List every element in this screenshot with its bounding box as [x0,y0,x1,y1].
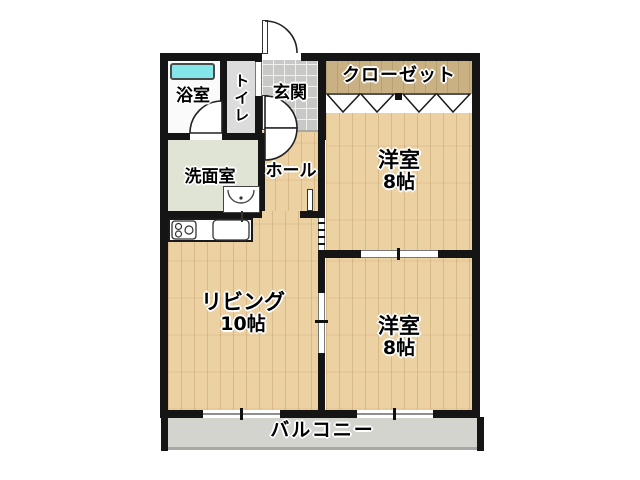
balcony-edge [168,447,477,450]
window-tick [393,408,396,420]
living-door-leaf-icon [307,189,313,211]
closet-label: クローゼット [328,66,470,87]
wall [280,410,357,418]
living-name: リビング [201,290,285,314]
balcony-post [161,417,168,451]
bedroom-bottom-label: 洋室 8帖 [326,314,472,360]
balcony-label: バルコニー [168,420,477,442]
wall [160,133,190,140]
bedroom-top-name: 洋室 [378,148,420,172]
bedroom-top-size: 8帖 [326,172,472,194]
wall [301,53,480,61]
kitchen-counter [168,218,253,242]
hall-label: ホール [262,162,320,182]
wall [318,53,326,140]
sliding-door-tick [397,248,400,260]
entrance-label: 玄関 [262,84,318,104]
washroom-label: 洗面室 [164,168,256,188]
bathroom-label: 浴室 [168,87,218,107]
wall [220,60,227,133]
toilet-doorway [255,62,262,96]
washbasin-icon [223,186,260,213]
wall [160,53,168,417]
wall [160,53,262,61]
balcony-post [477,417,484,451]
bathroom-doorway [190,133,222,140]
bedroom-top-label: 洋室 8帖 [326,148,472,194]
entrance-step-line [267,130,318,132]
wall [433,410,480,418]
closet-divider [395,93,402,100]
door-tick [318,229,325,231]
floorplan-canvas: 浴室 トイレ 玄関 クローゼット 洋室 8帖 洗面室 ホール リビング 10帖 … [0,0,640,480]
entrance-door-arc-icon [265,21,297,53]
wall [220,133,267,140]
door-tick [318,222,325,224]
bedroom-bottom-name: 洋室 [378,314,420,338]
window-tick [240,408,243,420]
toilet-label: トイレ [232,63,249,133]
door-tick [318,236,325,238]
bedroom-bottom-size: 8帖 [326,338,472,360]
wall [472,53,480,417]
bathtub-icon [170,63,215,80]
sliding-door-living-bedroom [318,293,325,353]
living-size: 10帖 [168,314,318,336]
living-label: リビング 10帖 [168,290,318,336]
entrance-door-leaf-icon [262,20,268,54]
door-tick [318,243,325,245]
wall [300,211,318,218]
